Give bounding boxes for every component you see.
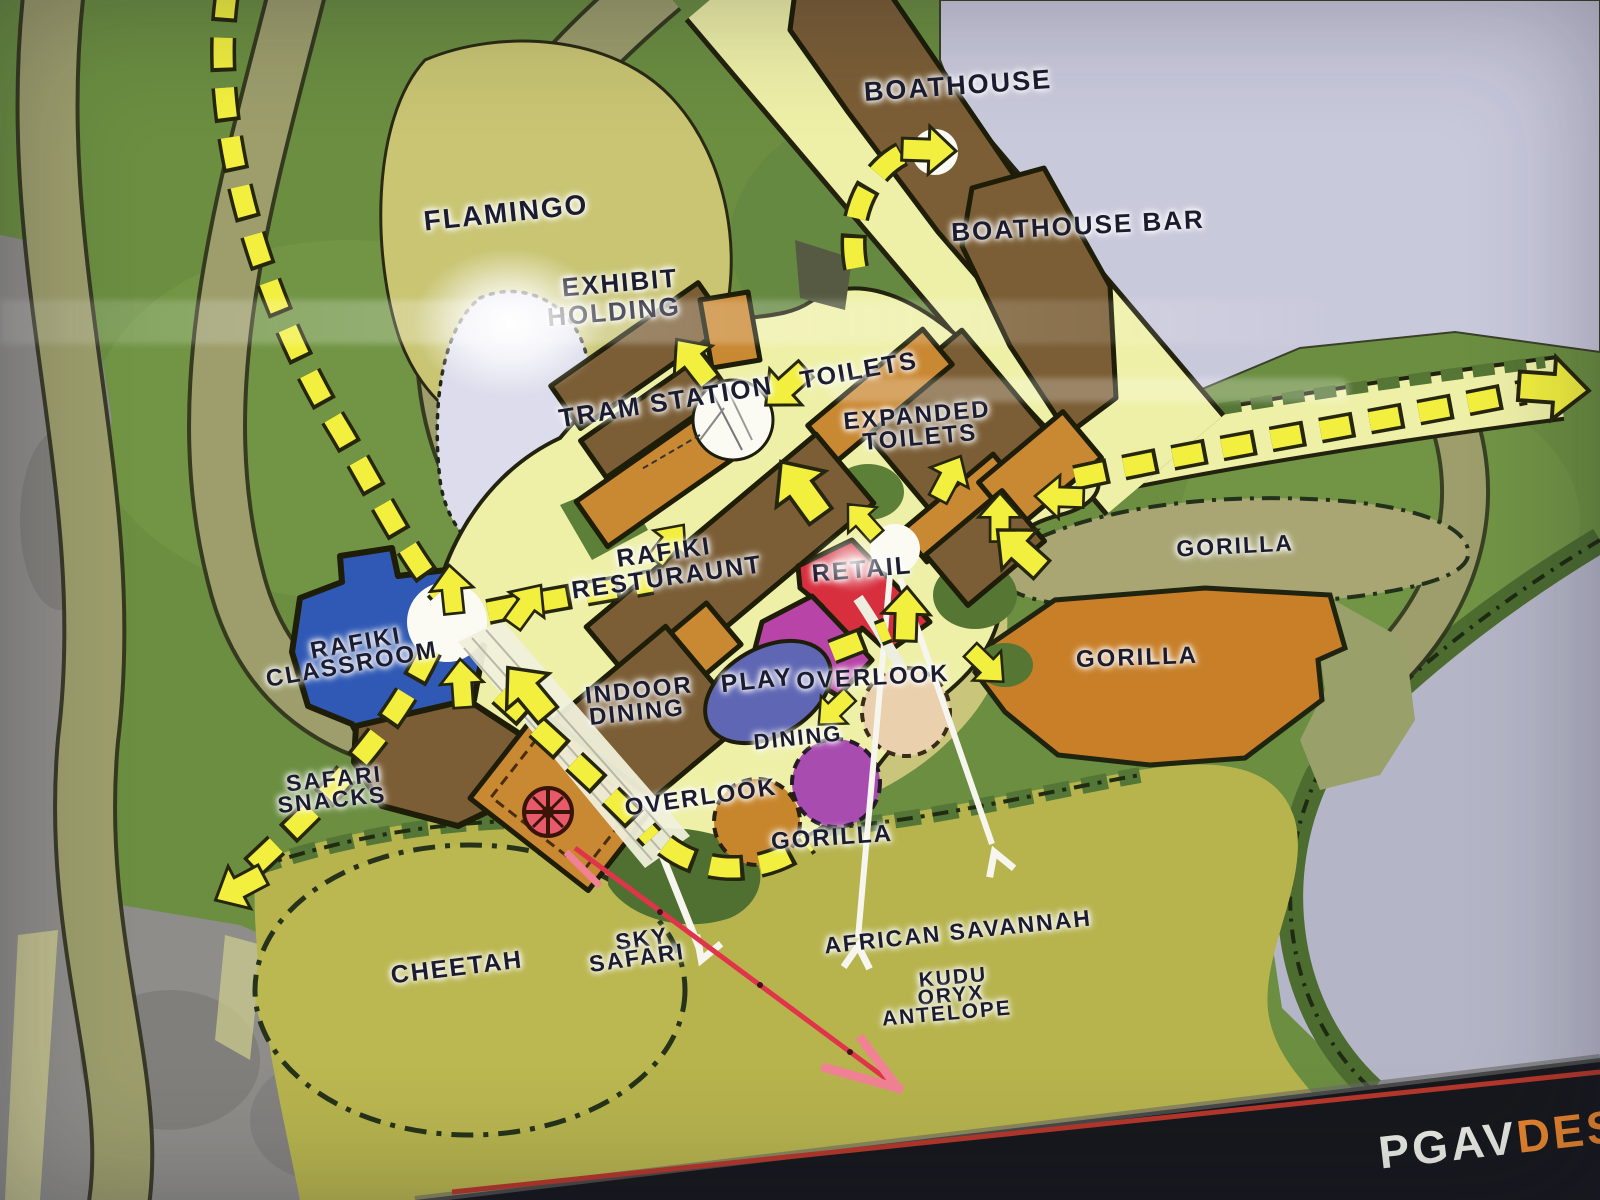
zoo-master-plan-map: BOATHOUSE BOATHOUSE BAR FLAMINGO EXHIBIT… xyxy=(0,0,1600,1200)
label-gorilla-exhibit: GORILLA xyxy=(1076,642,1199,674)
pgav-logo-accent: DES xyxy=(1514,1099,1600,1162)
exhibit-holding-annex xyxy=(700,292,760,368)
map-artwork xyxy=(0,0,1600,1200)
